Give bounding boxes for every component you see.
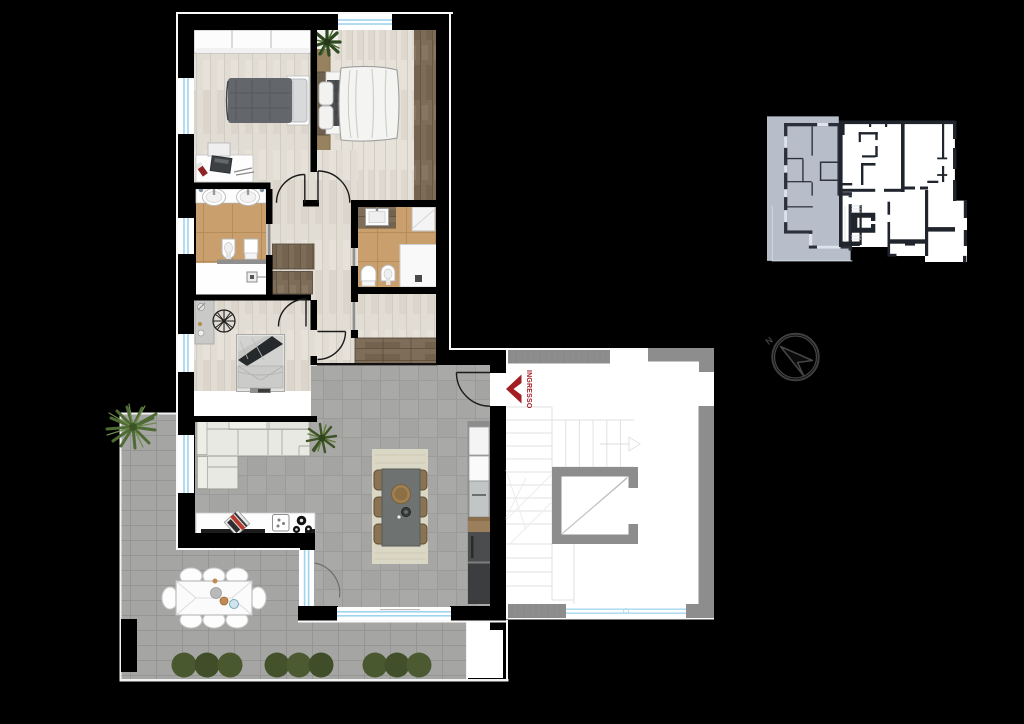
svg-text:INGRESSO: INGRESSO (525, 370, 532, 409)
